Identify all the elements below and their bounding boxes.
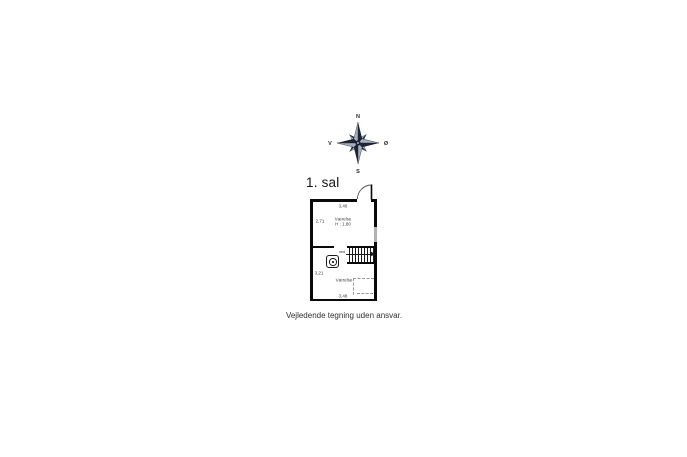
wall-right (374, 199, 377, 301)
toilet-bowl-icon (329, 258, 337, 266)
upper-room-width-dimension: 3,48 (338, 203, 347, 208)
lower-room-depth-dimension: 3,21 (314, 270, 323, 275)
stair-direction-line (346, 254, 370, 255)
compass-rose: N S V Ø (325, 110, 391, 176)
stair-direction-arrowhead (370, 251, 375, 257)
compass-west-label: V (328, 141, 332, 147)
compass-south-label: S (356, 169, 360, 175)
compass-center-dot (357, 142, 359, 144)
disclaimer-text: Vejledende tegning uden ansvar. (286, 311, 402, 320)
upper-room-ceiling-height: H : 1,80 (335, 221, 351, 226)
upper-room-name: Værelse (335, 216, 352, 221)
lower-room-width-dimension: 3,48 (339, 293, 348, 298)
door-swing-arc (357, 184, 373, 200)
wall-left (310, 199, 313, 301)
compass-east-label: Ø (384, 141, 389, 147)
toilet-bowl-dot (332, 261, 334, 263)
page: { "page": { "title": "1. sal", "disclaim… (0, 0, 687, 457)
wall-middle (310, 246, 334, 249)
wall-top-left (310, 199, 357, 202)
stair-down-label: ned (339, 249, 345, 253)
toilet-fixture (326, 255, 339, 268)
lower-room-name: Værelse (336, 277, 353, 282)
window-marker (374, 227, 377, 242)
ceiling-height-dash-bottom (357, 293, 373, 294)
ceiling-height-dash-vertical (353, 278, 354, 295)
wall-bottom (310, 299, 377, 302)
floorplan: ned 3,48 2,71 Værelse H : 1,80 3,21 Være… (310, 199, 377, 301)
wall-stair-bottom (347, 262, 377, 265)
upper-room-depth-dimension: 2,71 (315, 218, 324, 223)
floor-title: 1. sal (306, 175, 339, 190)
compass-north-label: N (356, 114, 360, 120)
ceiling-height-dash-top (353, 278, 374, 279)
